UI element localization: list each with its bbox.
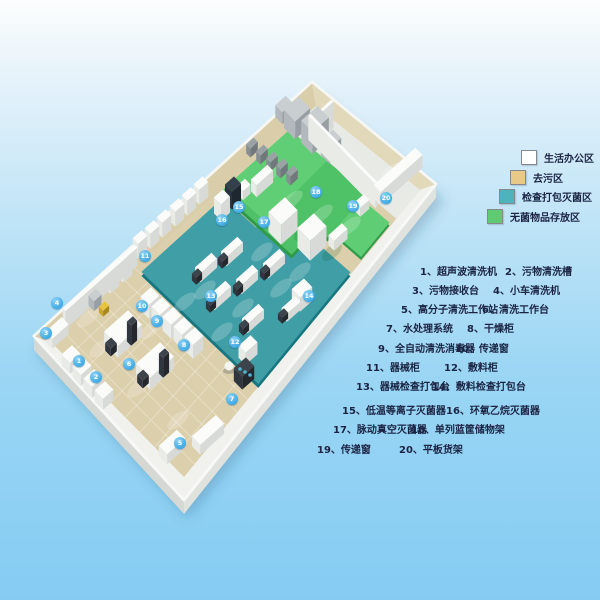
legend-label: 无菌物品存放区	[510, 209, 580, 224]
plan-marker-8: 8	[178, 339, 190, 351]
plan-marker-16: 16	[216, 214, 228, 226]
legend-row-1: 生活办公区	[521, 150, 594, 165]
plan-marker-6: 6	[123, 358, 135, 370]
equipment-item-15: 15、低温等离子灭菌器	[342, 402, 446, 417]
equipment-item-6: 6、清洗工作台	[482, 301, 549, 316]
legend-swatch	[499, 189, 515, 204]
legend-label: 检查打包灭菌区	[522, 189, 592, 204]
equipment-item-19: 19、传递窗	[317, 441, 371, 456]
legend-label: 生活办公区	[544, 150, 594, 165]
legend-swatch	[521, 150, 537, 165]
legend-label: 去污区	[533, 170, 563, 185]
legend-row-4: 无菌物品存放区	[487, 209, 580, 224]
equipment-item-11: 11、器械柜	[366, 359, 420, 374]
legend-row-2: 去污区	[510, 170, 563, 185]
plan-marker-2: 2	[90, 371, 102, 383]
plan-marker-13: 13	[205, 290, 217, 302]
equipment-item-20: 20、平板货架	[399, 441, 463, 456]
plan-marker-18: 18	[310, 186, 322, 198]
plan-marker-10: 10	[136, 300, 148, 312]
equipment-item-12: 12、敷料柜	[444, 359, 498, 374]
equipment-item-8: 8、干燥柜	[467, 320, 514, 335]
plan-marker-14: 14	[303, 290, 315, 302]
facility-layout-diagram: 1234567891011121314151617181920 生活办公区去污区…	[0, 0, 600, 600]
plan-marker-5: 5	[174, 437, 186, 449]
plan-marker-3: 3	[40, 327, 52, 339]
plan-marker-4: 4	[51, 297, 63, 309]
equipment-item-2: 2、污物清洗槽	[505, 263, 572, 278]
legend-row-3: 检查打包灭菌区	[499, 189, 592, 204]
plan-marker-15: 15	[233, 201, 245, 213]
legend-swatch	[510, 170, 526, 185]
plan-marker-12: 12	[229, 336, 241, 348]
equipment-item-4: 4、小车清洗机	[493, 282, 560, 297]
plan-marker-7: 7	[226, 393, 238, 405]
equipment-item-14: 14、敷料检查打包台	[432, 378, 526, 393]
plan-marker-17: 17	[258, 216, 270, 228]
equipment-item-1: 1、超声波清洗机	[420, 263, 497, 278]
plan-marker-11: 11	[139, 250, 151, 262]
plan-marker-1: 1	[73, 355, 85, 367]
equipment-item-18: 18、单列蓝筐储物架	[411, 421, 505, 436]
equipment-item-16: 16、环氧乙烷灭菌器	[446, 402, 540, 417]
equipment-item-3: 3、污物接收台	[412, 282, 479, 297]
plan-marker-20: 20	[380, 192, 392, 204]
equipment-item-10: 10、传递窗	[455, 340, 509, 355]
plan-marker-19: 19	[347, 200, 359, 212]
equipment-item-7: 7、水处理系统	[386, 320, 453, 335]
floor-plan-3d	[0, 0, 600, 600]
legend-swatch	[487, 209, 503, 224]
plan-marker-9: 9	[151, 315, 163, 327]
